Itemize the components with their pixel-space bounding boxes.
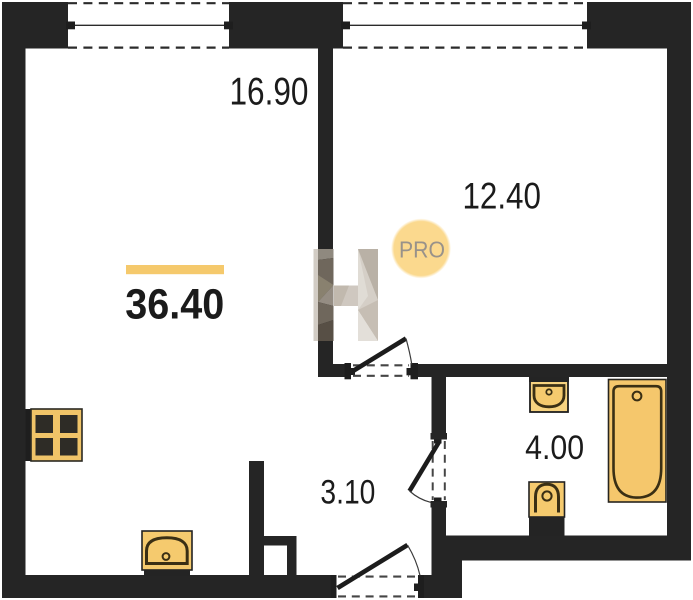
svg-text:16.90: 16.90 (230, 70, 309, 113)
svg-text:36.40: 36.40 (125, 280, 224, 328)
svg-text:12.40: 12.40 (462, 176, 541, 217)
svg-text:4.00: 4.00 (525, 429, 584, 467)
svg-text:3.10: 3.10 (320, 473, 375, 511)
svg-text:PRO: PRO (399, 236, 445, 262)
